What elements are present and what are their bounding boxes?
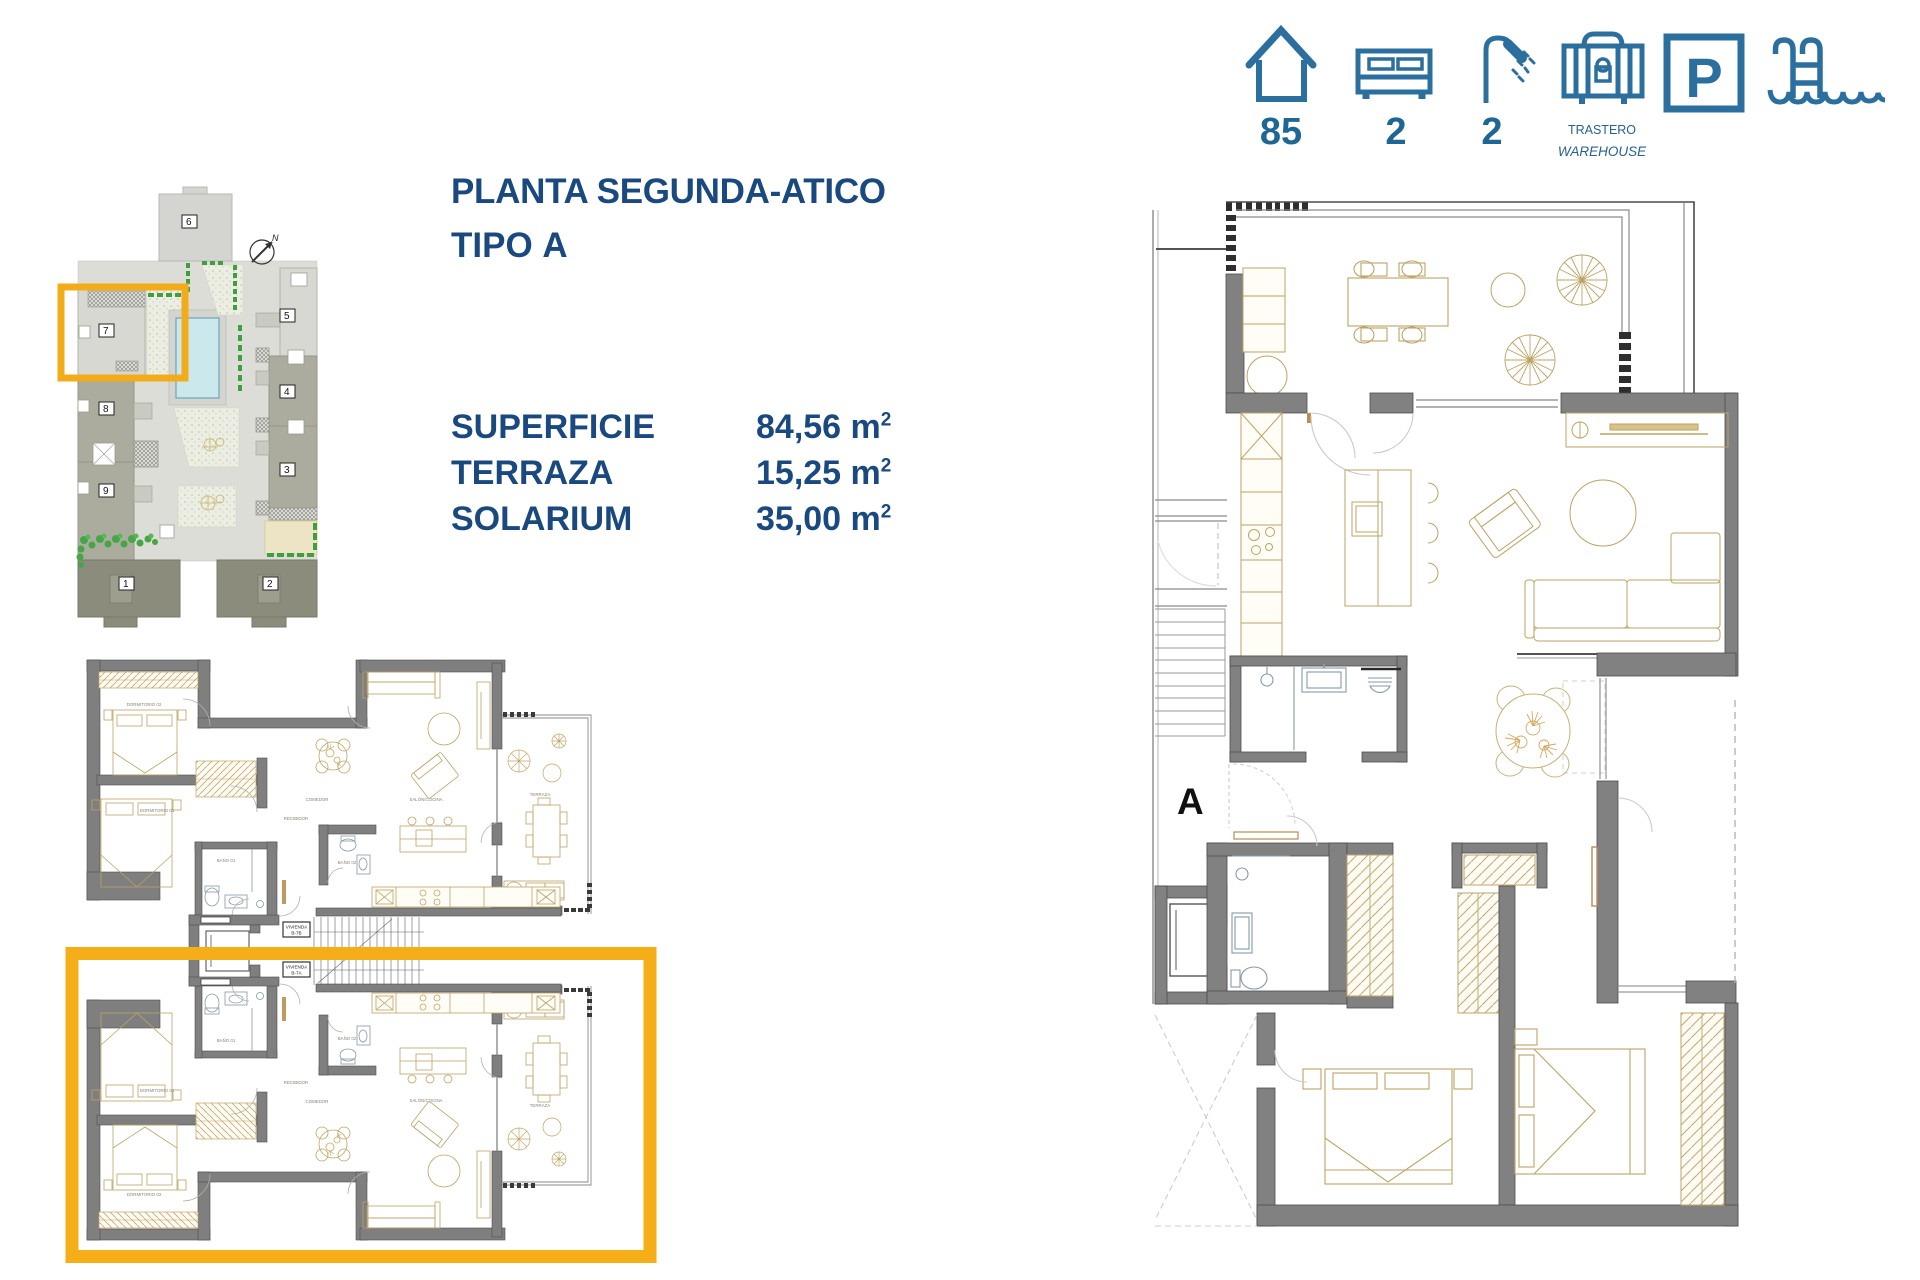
svg-text:TRASTERO: TRASTERO [1568,123,1636,137]
svg-text:8: 8 [103,404,109,415]
svg-text:3: 3 [284,465,290,476]
svg-text:B-7B: B-7B [291,931,301,936]
svg-text:2: 2 [1481,111,1502,153]
svg-text:7: 7 [103,326,109,337]
svg-text:SALÓN/COCINA: SALÓN/COCINA [409,797,442,802]
svg-text:TERRAZA: TERRAZA [530,792,551,797]
svg-text:WAREHOUSE: WAREHOUSE [1558,144,1647,159]
svg-text:B-7A: B-7A [291,971,302,976]
svg-text:5: 5 [284,311,290,322]
svg-text:RECIBIDOR: RECIBIDOR [284,816,308,821]
svg-text:BAÑO 02: BAÑO 02 [338,1036,357,1041]
svg-text:BAÑO 01: BAÑO 01 [217,1038,236,1043]
svg-text:DORMITORIO 01: DORMITORIO 01 [140,808,175,813]
svg-text:BAÑO 02: BAÑO 02 [338,860,357,865]
svg-text:P: P [1685,46,1722,109]
svg-text:N: N [272,233,279,243]
svg-text:A: A [1177,781,1204,822]
svg-text:2: 2 [1385,111,1406,153]
svg-text:DORMITORIO 02: DORMITORIO 02 [127,702,162,707]
svg-text:6: 6 [186,217,192,228]
svg-text:COMEDOR: COMEDOR [306,1099,329,1104]
svg-text:COMEDOR: COMEDOR [306,797,329,802]
svg-text:1: 1 [123,579,129,590]
svg-text:VIVIENDA: VIVIENDA [286,925,308,930]
svg-text:2: 2 [267,579,273,590]
svg-text:DORMITORIO 02: DORMITORIO 02 [127,1192,162,1197]
svg-text:DORMITORIO 01: DORMITORIO 01 [140,1088,175,1093]
svg-text:9: 9 [103,486,109,497]
svg-text:RECIBIDOR: RECIBIDOR [284,1080,308,1085]
svg-text:85: 85 [1260,111,1302,153]
svg-text:BAÑO 01: BAÑO 01 [217,858,236,863]
svg-text:SALÓN/COCINA: SALÓN/COCINA [409,1098,442,1103]
svg-text:4: 4 [284,387,290,398]
svg-text:TERRAZA: TERRAZA [530,1103,551,1108]
svg-text:VIVIENDA: VIVIENDA [286,965,308,970]
